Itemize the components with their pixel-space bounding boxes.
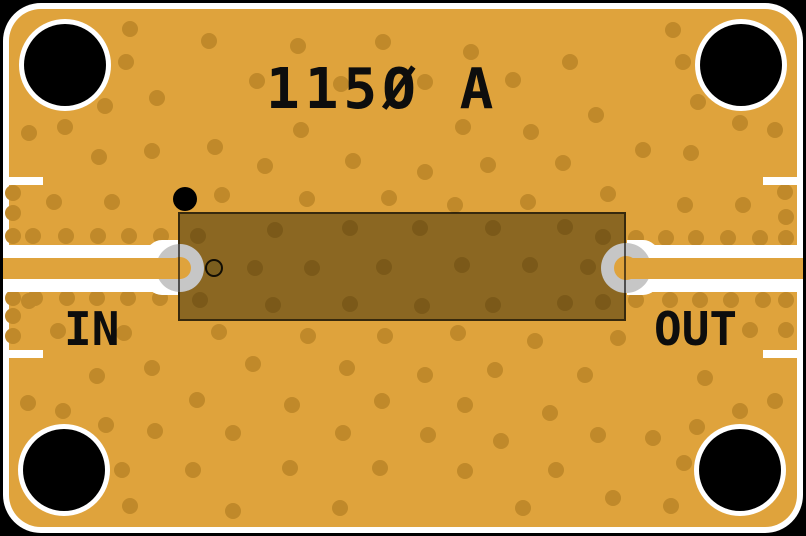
via bbox=[450, 325, 466, 341]
via bbox=[645, 430, 661, 446]
via bbox=[635, 142, 651, 158]
via bbox=[372, 460, 388, 476]
via bbox=[767, 393, 783, 409]
via bbox=[732, 403, 748, 419]
via bbox=[21, 293, 37, 309]
pin1-marker-dot bbox=[173, 187, 197, 211]
via bbox=[480, 157, 496, 173]
via bbox=[122, 21, 138, 37]
via bbox=[282, 460, 298, 476]
microstrip-trace bbox=[626, 258, 803, 279]
via bbox=[767, 122, 783, 138]
via bbox=[527, 333, 543, 349]
via bbox=[5, 185, 21, 201]
via bbox=[375, 34, 391, 50]
via bbox=[720, 230, 736, 246]
via bbox=[658, 230, 674, 246]
via bbox=[293, 122, 309, 138]
via bbox=[447, 197, 463, 213]
via bbox=[752, 230, 768, 246]
via bbox=[46, 194, 62, 210]
via bbox=[600, 186, 616, 202]
via bbox=[98, 417, 114, 433]
in-port-label: IN bbox=[64, 306, 119, 352]
via bbox=[257, 158, 273, 174]
via bbox=[487, 362, 503, 378]
mounting-hole bbox=[699, 429, 781, 511]
via bbox=[339, 360, 355, 376]
via bbox=[778, 230, 794, 246]
mounting-hole bbox=[23, 429, 105, 511]
via bbox=[144, 360, 160, 376]
via bbox=[149, 90, 165, 106]
via bbox=[778, 209, 794, 225]
via bbox=[299, 191, 315, 207]
via bbox=[457, 397, 473, 413]
via bbox=[214, 187, 230, 203]
via bbox=[121, 228, 137, 244]
via bbox=[515, 500, 531, 516]
edge-mark bbox=[763, 177, 803, 185]
via bbox=[21, 125, 37, 141]
via bbox=[742, 322, 758, 338]
via bbox=[118, 54, 134, 70]
via bbox=[457, 463, 473, 479]
via bbox=[122, 498, 138, 514]
via bbox=[505, 72, 521, 88]
via bbox=[420, 427, 436, 443]
via bbox=[493, 433, 509, 449]
via bbox=[677, 197, 693, 213]
via bbox=[697, 370, 713, 386]
via bbox=[284, 397, 300, 413]
via bbox=[778, 322, 794, 338]
via bbox=[778, 292, 794, 308]
via bbox=[25, 228, 41, 244]
cpw-gap bbox=[3, 245, 162, 258]
mounting-hole bbox=[700, 24, 782, 106]
via bbox=[523, 124, 539, 140]
edge-mark bbox=[3, 350, 43, 358]
via bbox=[335, 425, 351, 441]
via bbox=[89, 368, 105, 384]
silkscreen-part-number: 115Ø A bbox=[266, 62, 498, 118]
via bbox=[5, 290, 21, 306]
via bbox=[683, 145, 699, 161]
via bbox=[332, 500, 348, 516]
via bbox=[755, 292, 771, 308]
cpw-gap bbox=[644, 279, 803, 292]
via bbox=[777, 184, 793, 200]
via bbox=[675, 54, 691, 70]
via bbox=[588, 107, 604, 123]
via bbox=[377, 328, 393, 344]
pcb-board-image: 115Ø A IN OUT bbox=[0, 0, 806, 536]
via bbox=[562, 54, 578, 70]
via bbox=[225, 425, 241, 441]
via bbox=[90, 228, 106, 244]
via bbox=[290, 38, 306, 54]
via bbox=[417, 164, 433, 180]
via bbox=[147, 423, 163, 439]
via bbox=[55, 403, 71, 419]
via bbox=[5, 205, 21, 221]
via bbox=[120, 290, 136, 306]
via bbox=[114, 462, 130, 478]
via bbox=[381, 190, 397, 206]
via bbox=[735, 197, 751, 213]
via bbox=[58, 228, 74, 244]
microstrip-trace bbox=[3, 258, 181, 279]
via bbox=[374, 393, 390, 409]
cpw-gap bbox=[644, 245, 803, 258]
via bbox=[665, 22, 681, 38]
via bbox=[201, 33, 217, 49]
via bbox=[20, 395, 36, 411]
via bbox=[97, 98, 113, 114]
edge-mark bbox=[3, 177, 43, 185]
out-port-label: OUT bbox=[654, 306, 737, 352]
via bbox=[91, 149, 107, 165]
edge-mark bbox=[763, 350, 803, 358]
via bbox=[663, 498, 679, 514]
via bbox=[5, 328, 21, 344]
via bbox=[610, 330, 626, 346]
via bbox=[225, 503, 241, 519]
via bbox=[417, 367, 433, 383]
via bbox=[689, 419, 705, 435]
via bbox=[605, 490, 621, 506]
via bbox=[555, 155, 571, 171]
mounting-hole bbox=[24, 24, 106, 106]
via bbox=[590, 427, 606, 443]
chip-border bbox=[178, 212, 626, 321]
via bbox=[207, 139, 223, 155]
via bbox=[144, 143, 160, 159]
via bbox=[104, 194, 120, 210]
via bbox=[5, 228, 21, 244]
via bbox=[300, 328, 316, 344]
via bbox=[189, 392, 205, 408]
via bbox=[548, 462, 564, 478]
via bbox=[676, 455, 692, 471]
via bbox=[249, 73, 265, 89]
via bbox=[542, 405, 558, 421]
via bbox=[732, 115, 748, 131]
via bbox=[5, 308, 21, 324]
via bbox=[345, 153, 361, 169]
via bbox=[577, 367, 593, 383]
via bbox=[245, 356, 261, 372]
via bbox=[520, 194, 536, 210]
via bbox=[688, 230, 704, 246]
via bbox=[185, 462, 201, 478]
via bbox=[211, 324, 227, 340]
via bbox=[57, 119, 73, 135]
cpw-gap bbox=[3, 279, 162, 292]
via bbox=[690, 94, 706, 110]
